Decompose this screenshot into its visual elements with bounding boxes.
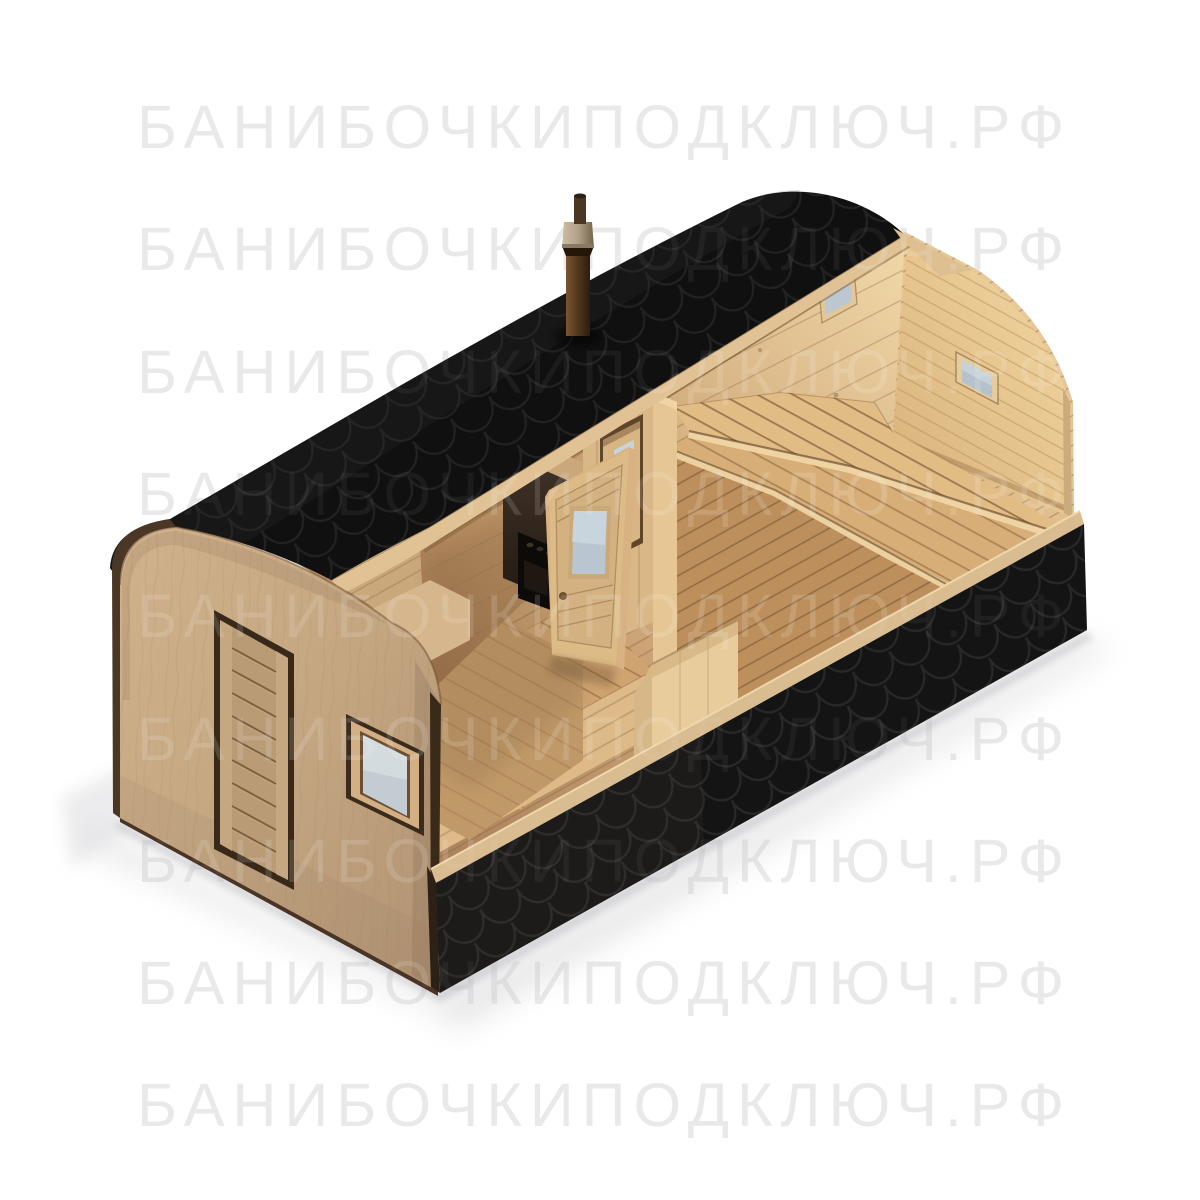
svg-text:БАНИБОЧКИПОДКЛЮЧ.РФ: БАНИБОЧКИПОДКЛЮЧ.РФ xyxy=(137,93,1072,161)
svg-text:БАНИБОЧКИПОДКЛЮЧ.РФ: БАНИБОЧКИПОДКЛЮЧ.РФ xyxy=(137,949,1072,1017)
svg-text:БАНИБОЧКИПОДКЛЮЧ.РФ: БАНИБОЧКИПОДКЛЮЧ.РФ xyxy=(137,1071,1072,1139)
